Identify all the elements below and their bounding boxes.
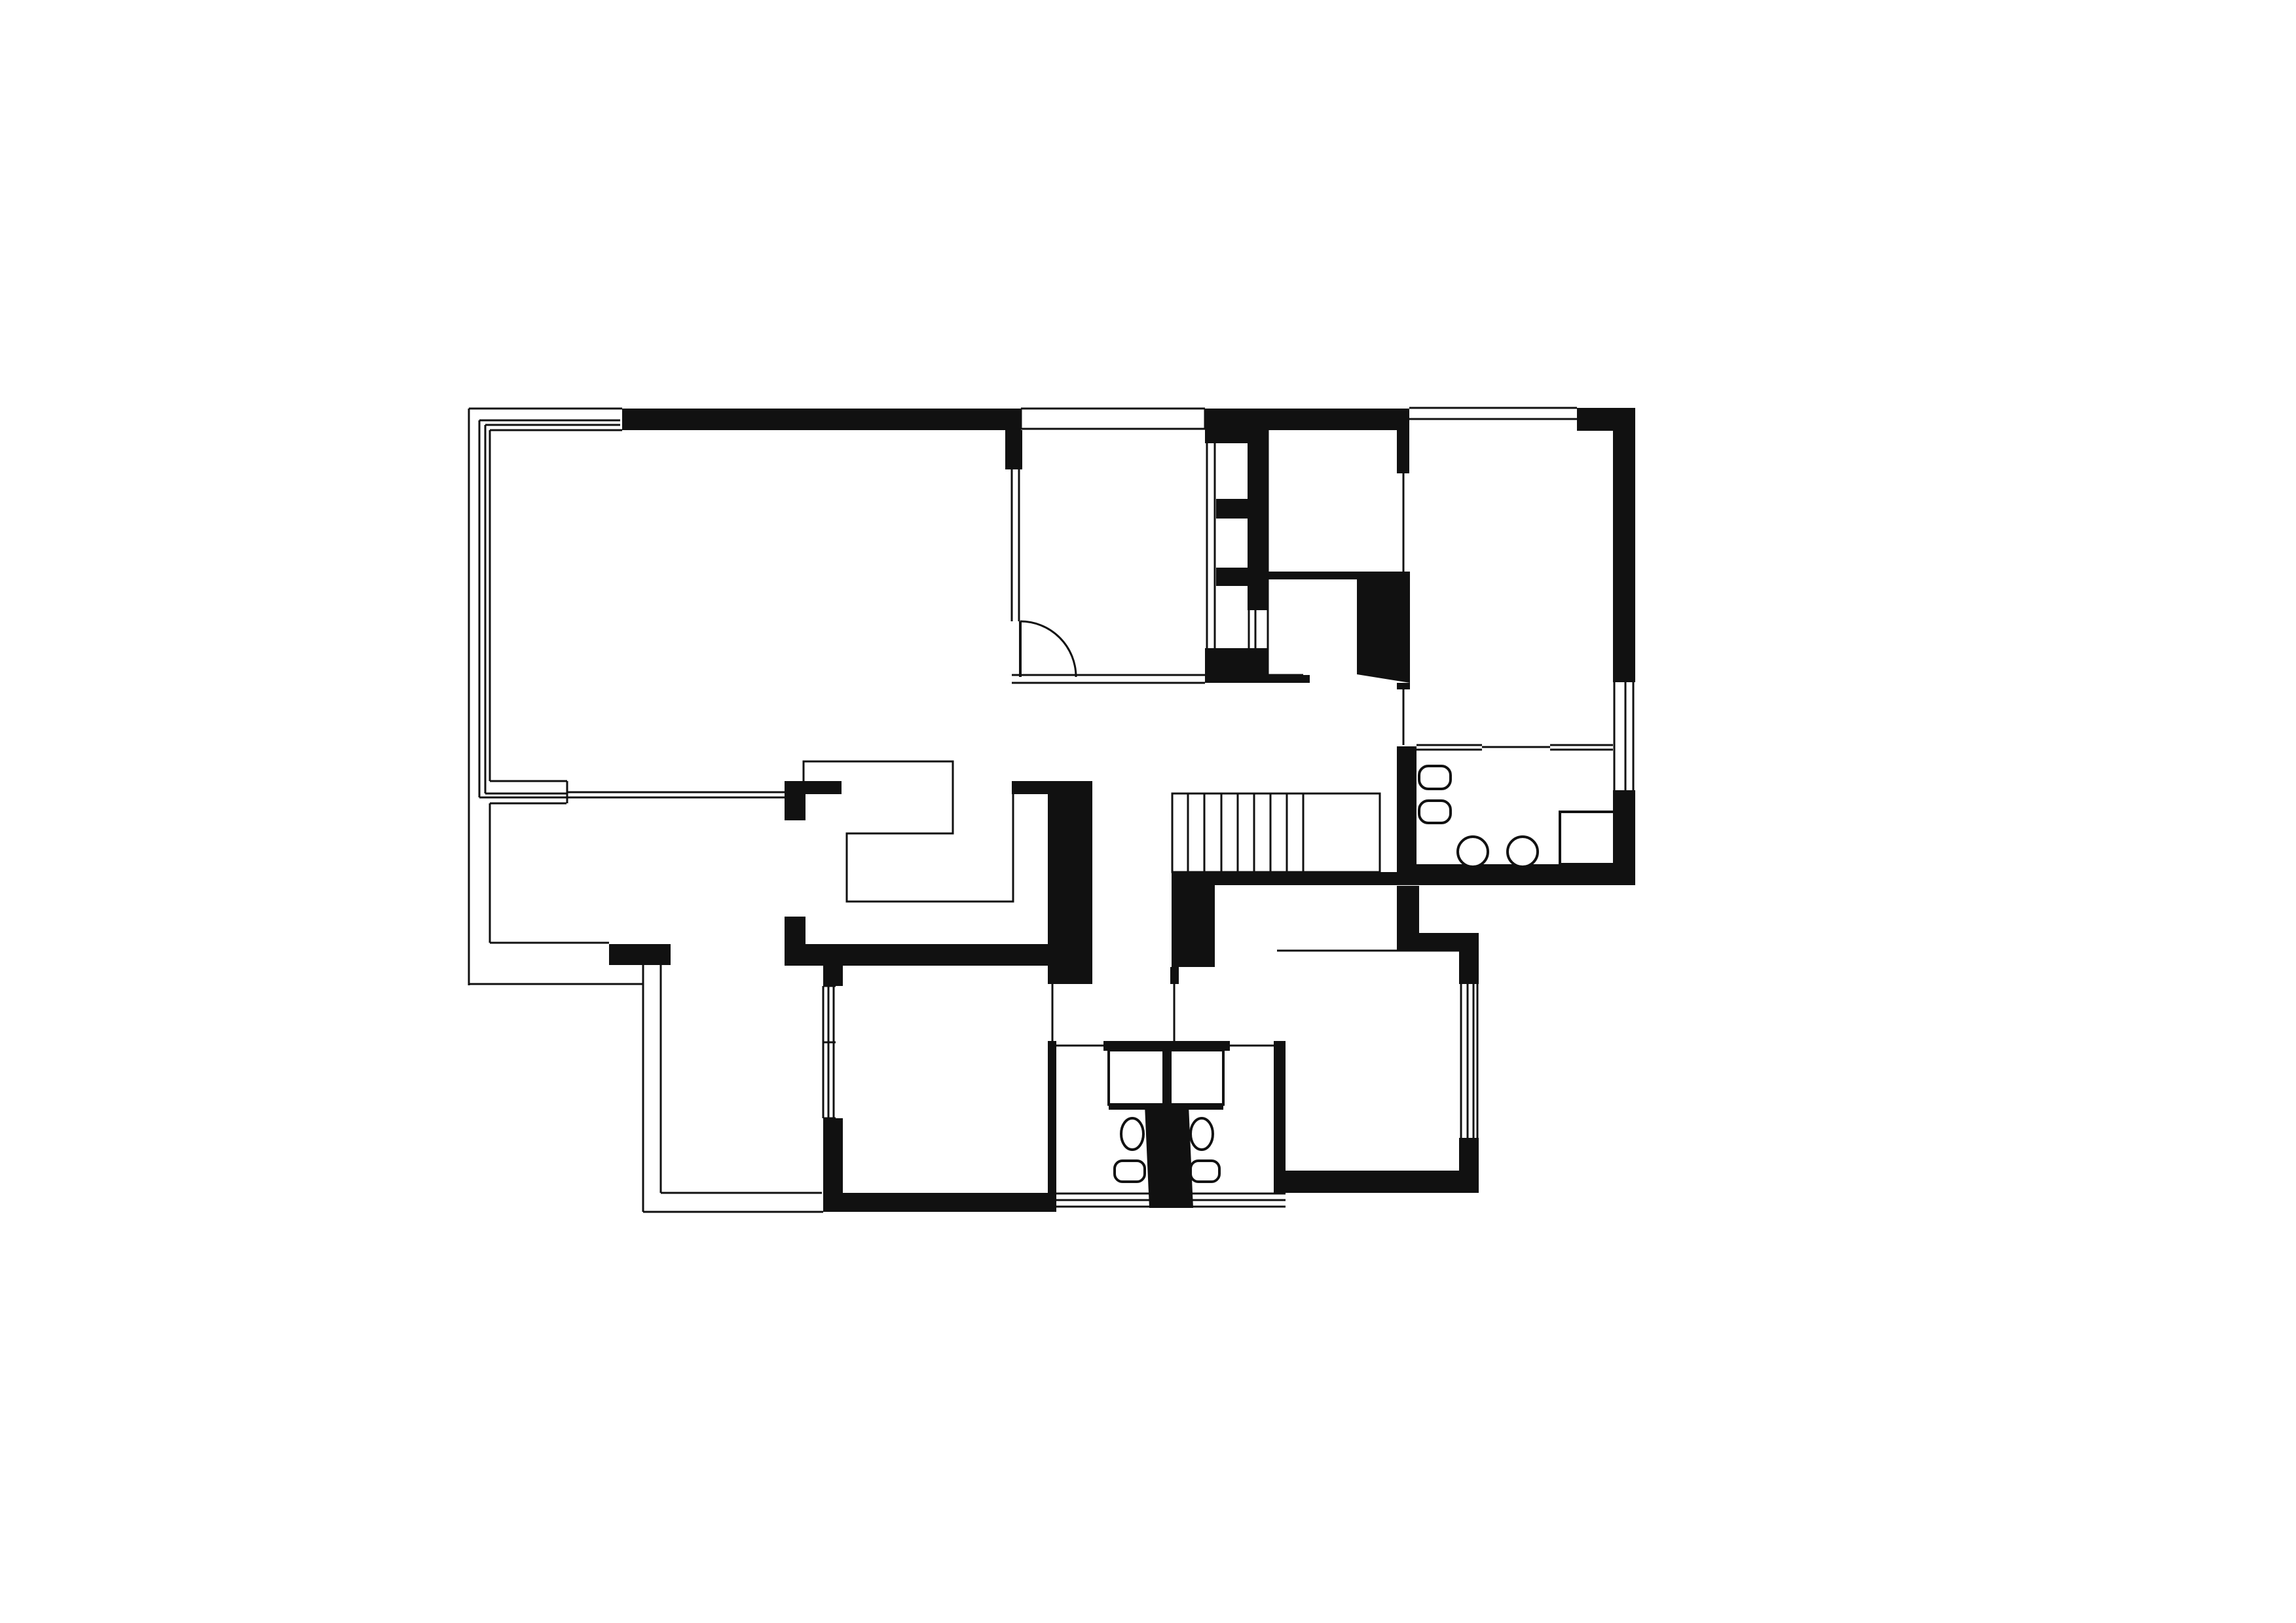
wall-bath2-east: [1274, 1041, 1286, 1194]
wc-tank-right: [1191, 1161, 1219, 1182]
wall-br-east-top: [1459, 951, 1479, 984]
wall-bedroom-south-band: [1205, 675, 1310, 683]
wall-hall-band: [1397, 933, 1479, 951]
wall-wardrobe-tab-1: [1216, 499, 1248, 519]
wall-stair-west-stub: [1170, 967, 1179, 984]
wall-bath2-slab: [1145, 1105, 1193, 1208]
wall-wardrobe-base: [1205, 648, 1268, 675]
wall-closet-east-mass: [1048, 781, 1092, 984]
wall-closet-west-bottom: [785, 917, 805, 944]
wall-stair-west-mass: [1172, 872, 1215, 967]
toilet-fixture-1: [1419, 766, 1451, 789]
wall-wardrobe-tab-2: [1216, 568, 1248, 586]
wall-hall-column: [1397, 886, 1419, 933]
wall-closet-north-band: [785, 781, 842, 794]
door-bedroom-swing-arc: [1020, 621, 1076, 677]
wall-terrace-block: [609, 944, 671, 965]
wall-bath1-south-band: [1397, 864, 1635, 885]
stall-left-box: [1109, 1050, 1164, 1104]
floor-plan-drawing: [0, 0, 2296, 1623]
wall-partition-head: [1005, 430, 1022, 469]
wall-br-south-band: [1277, 1171, 1479, 1193]
wall-blroom-west-bottom: [823, 1118, 843, 1193]
wall-east-lower: [1613, 790, 1635, 869]
basin-fixture-2: [1508, 837, 1538, 867]
wall-closet-east-band: [1012, 781, 1048, 794]
wall-bath2-west: [1048, 1041, 1056, 1194]
wall-wardrobe-column: [1248, 443, 1267, 610]
wall-bath1-west: [1397, 746, 1416, 869]
basin-fixture-1: [1458, 837, 1488, 867]
wall-blroom-south-band: [823, 1193, 1056, 1212]
wall-top-band-west: [622, 409, 1021, 430]
floor-plan-page: [0, 0, 2296, 1623]
wall-ne-room-head: [1397, 430, 1409, 473]
stall-right-box: [1170, 1050, 1223, 1104]
wc-tank-left: [1115, 1161, 1145, 1182]
wall-wardrobe-top: [1205, 430, 1267, 443]
wall-shaft-foot: [1397, 683, 1410, 689]
wall-top-band-east: [1205, 409, 1409, 430]
shower-tray: [1560, 812, 1614, 864]
wall-blroom-west-top: [823, 966, 843, 986]
wc-bowl-right: [1191, 1118, 1213, 1150]
wall-blroom-north-band: [785, 944, 1056, 966]
wall-shaft-mass: [1357, 572, 1410, 683]
wall-br-east-bottom: [1459, 1138, 1479, 1171]
wall-east-upper: [1613, 431, 1635, 682]
wall-closet-west-top: [785, 794, 805, 820]
wc-bowl-left: [1121, 1118, 1143, 1150]
toilet-fixture-2: [1419, 801, 1451, 823]
wall-top-corner-ne: [1577, 408, 1635, 431]
